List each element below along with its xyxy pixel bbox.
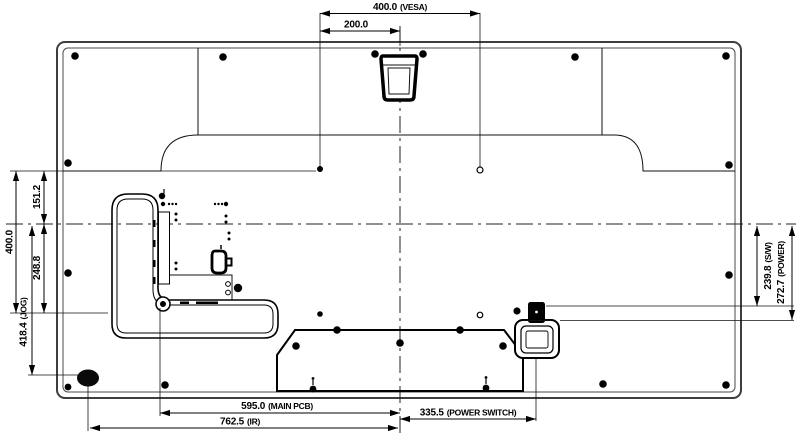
duct-corner-screw-center bbox=[160, 301, 166, 307]
dim-vesa-width: 400.0(VESA) bbox=[320, 2, 480, 14]
ir-area-screw bbox=[65, 384, 72, 391]
switch-area-screw bbox=[513, 307, 520, 314]
dim-vesa-half-label: 200.0 bbox=[344, 20, 369, 31]
dim-main-pcb-label: 595.0(MAIN PCB) bbox=[241, 401, 313, 412]
dim-power-switch-label: 335.5(POWER SWITCH) bbox=[420, 408, 517, 419]
screw bbox=[599, 380, 607, 388]
screw bbox=[64, 159, 72, 167]
screw bbox=[725, 271, 733, 279]
pcb-tick-4 bbox=[153, 277, 156, 284]
dim-vesa-width-label: 400.0(VESA) bbox=[373, 2, 428, 13]
dim-sw-label: 239.8(S/W) bbox=[763, 242, 774, 290]
vesa-hole-bottom-left bbox=[317, 311, 323, 317]
screw bbox=[219, 53, 227, 61]
screw bbox=[571, 53, 579, 61]
jog-bracket bbox=[212, 251, 226, 273]
handle-outer bbox=[381, 56, 417, 100]
screw bbox=[161, 381, 169, 389]
dim-power-label: 272.7(POWER) bbox=[776, 241, 787, 304]
screw bbox=[722, 381, 730, 389]
screw bbox=[71, 52, 79, 60]
jog-area-screw bbox=[159, 193, 165, 199]
screw bbox=[64, 269, 72, 277]
technical-drawing-page: 400.0(VESA) 200.0 400.0 151.2 248.8 418.… bbox=[0, 0, 800, 434]
pcb-tick-1 bbox=[153, 220, 156, 227]
board-screw bbox=[234, 284, 242, 292]
dim-vesa-height-label: 400.0 bbox=[5, 229, 16, 254]
rear-view-drawing: 400.0(VESA) 200.0 400.0 151.2 248.8 418.… bbox=[0, 0, 800, 434]
pcb-tick-3 bbox=[153, 260, 156, 267]
duct-connector-mark-1 bbox=[180, 302, 189, 305]
dim-ir-label: 762.5(IR) bbox=[220, 417, 260, 428]
screw bbox=[725, 161, 733, 169]
ir-sensor-knob bbox=[77, 370, 99, 387]
handle-bracket bbox=[381, 56, 417, 100]
screw bbox=[371, 50, 379, 58]
screw bbox=[722, 52, 730, 60]
control-pcb-strip bbox=[159, 212, 170, 284]
pcb-tick-2 bbox=[153, 240, 156, 247]
duct-connector-mark-2 bbox=[196, 302, 218, 305]
dim-upper-label: 151.2 bbox=[32, 184, 43, 209]
switch-knob-dot bbox=[535, 311, 538, 314]
vesa-hole-top-left bbox=[317, 166, 323, 172]
dim-jog-label: 418.4(JOG) bbox=[19, 297, 30, 347]
vesa-hole-bottom-right bbox=[477, 312, 483, 318]
dim-lower-label: 248.8 bbox=[32, 255, 43, 280]
vesa-hole-top-right bbox=[477, 167, 483, 173]
screw bbox=[419, 50, 427, 58]
